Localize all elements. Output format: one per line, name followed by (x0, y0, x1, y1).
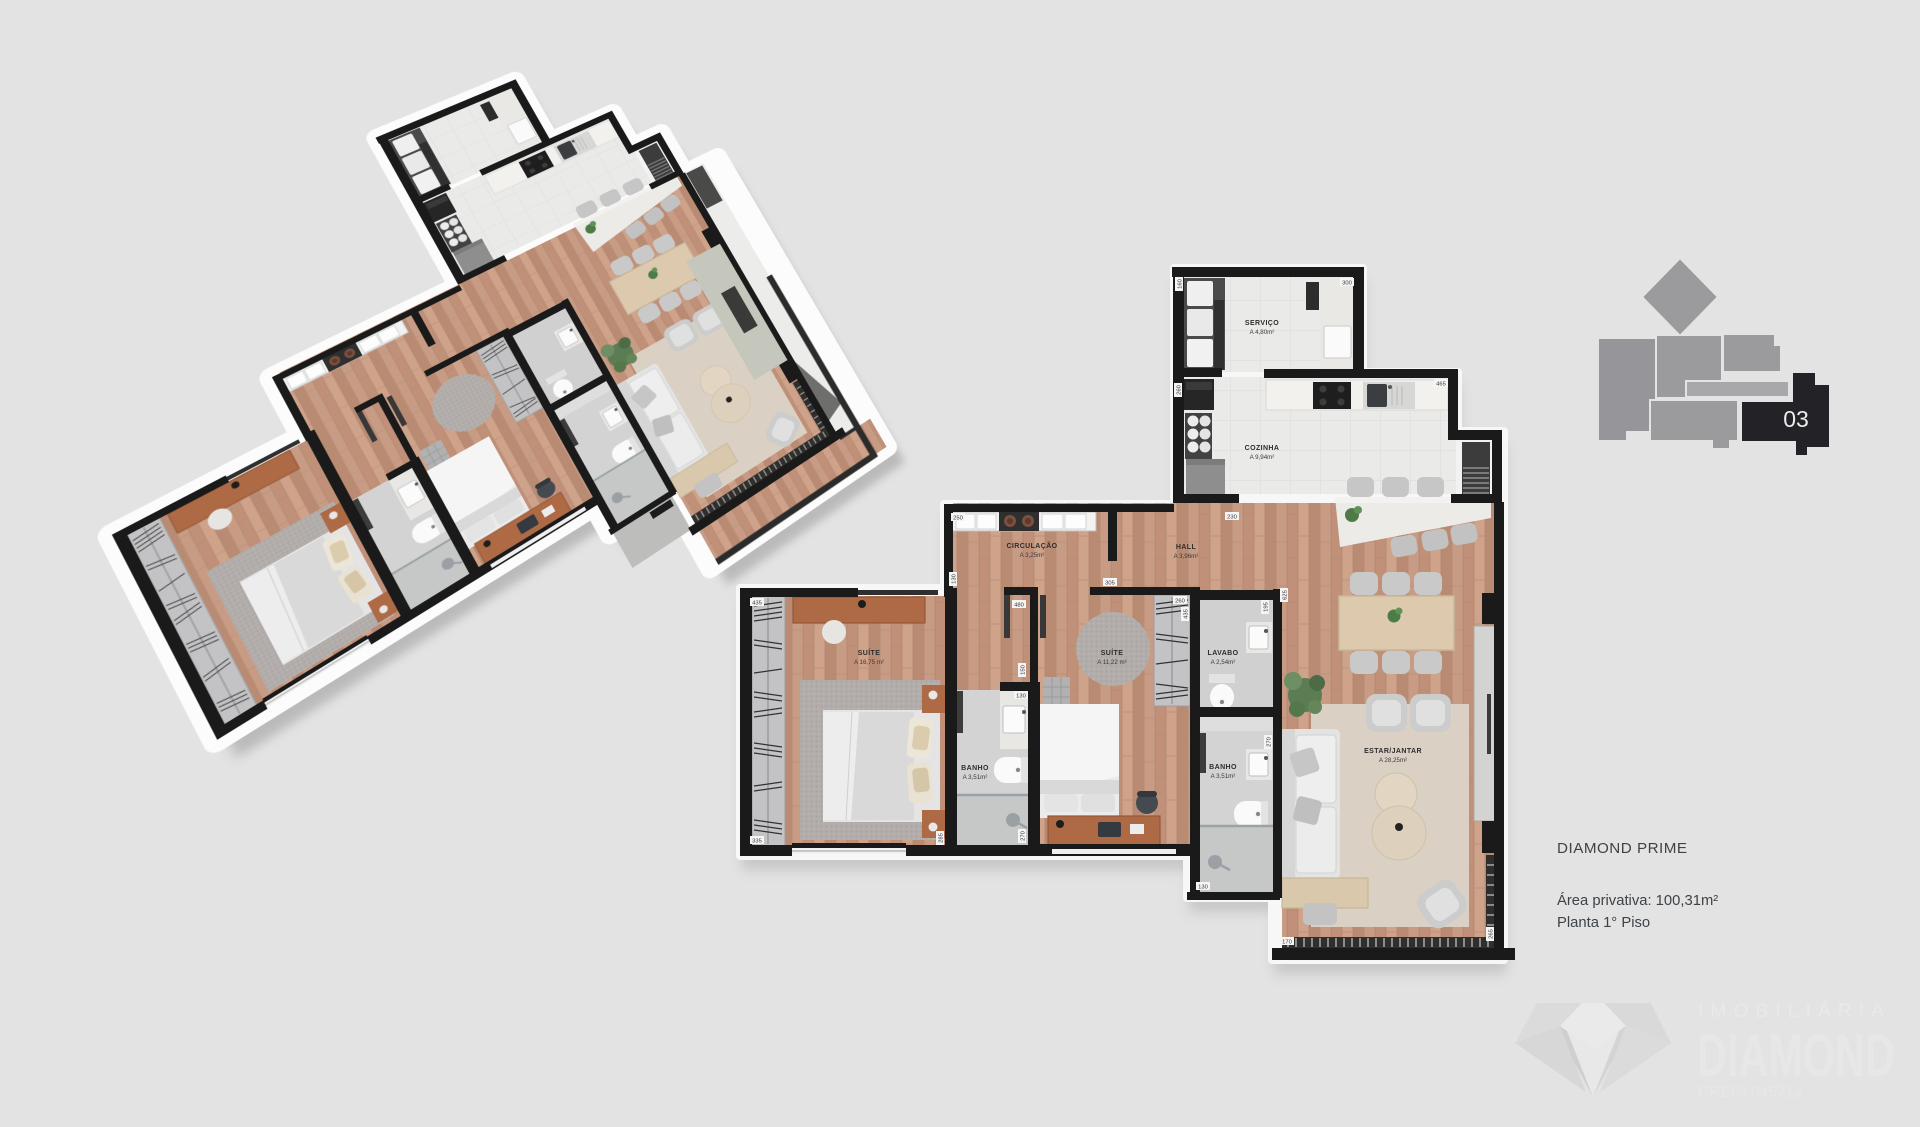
svg-text:435: 435 (752, 601, 762, 607)
svg-text:SUÍTE: SUÍTE (1101, 648, 1124, 657)
svg-text:150: 150 (1021, 665, 1027, 675)
svg-text:270: 270 (1021, 831, 1027, 841)
svg-text:270: 270 (1267, 737, 1273, 747)
svg-text:DIAMOND PRIME: DIAMOND PRIME (1557, 840, 1688, 857)
svg-text:335: 335 (752, 839, 762, 845)
svg-text:A 3,25m²: A 3,25m² (1020, 552, 1045, 559)
svg-text:480: 480 (1014, 603, 1024, 609)
svg-text:A 16,75 m²: A 16,75 m² (854, 659, 884, 666)
svg-text:250: 250 (953, 516, 963, 522)
svg-text:A 28,25m²: A 28,25m² (1379, 757, 1407, 764)
svg-text:BANHO: BANHO (961, 765, 989, 772)
svg-text:130: 130 (1198, 885, 1208, 891)
svg-text:LAVABO: LAVABO (1208, 650, 1239, 657)
svg-text:285: 285 (939, 833, 945, 843)
svg-text:Planta 1° Piso: Planta 1° Piso (1557, 915, 1650, 931)
svg-text:625: 625 (1283, 590, 1289, 600)
svg-text:COZINHA: COZINHA (1245, 445, 1280, 452)
svg-text:160: 160 (1178, 279, 1184, 289)
svg-text:230: 230 (1227, 515, 1237, 521)
svg-text:260: 260 (1175, 599, 1185, 605)
svg-text:A 4,80m²: A 4,80m² (1250, 329, 1275, 336)
svg-text:170: 170 (1282, 940, 1292, 946)
svg-text:260: 260 (1177, 385, 1183, 395)
svg-text:465: 465 (1436, 382, 1446, 388)
svg-text:195: 195 (1264, 602, 1270, 612)
svg-text:300: 300 (1342, 281, 1352, 287)
svg-text:SERVIÇO: SERVIÇO (1245, 320, 1279, 327)
svg-text:SUÍTE: SUÍTE (858, 648, 881, 657)
svg-text:A 3,96m²: A 3,96m² (1174, 553, 1199, 560)
svg-text:305: 305 (1105, 581, 1115, 587)
svg-text:A 2,54m²: A 2,54m² (1211, 659, 1236, 666)
svg-text:BANHO: BANHO (1209, 764, 1237, 771)
svg-text:435: 435 (1184, 609, 1190, 619)
svg-text:265: 265 (1489, 929, 1495, 939)
svg-text:A 3,51m²: A 3,51m² (963, 774, 988, 781)
svg-text:HALL: HALL (1176, 544, 1197, 551)
svg-text:Área privativa: 100,31m²: Área privativa: 100,31m² (1557, 892, 1718, 909)
svg-text:IMOBILIÁRIA: IMOBILIÁRIA (1698, 1001, 1891, 1022)
svg-text:130: 130 (952, 574, 958, 584)
svg-text:130: 130 (1016, 694, 1026, 700)
svg-text:A 11,22 m²: A 11,22 m² (1097, 659, 1126, 666)
svg-text:A 3,51m²: A 3,51m² (1211, 773, 1236, 780)
svg-text:DIAMOND: DIAMOND (1697, 1022, 1895, 1089)
svg-text:03: 03 (1783, 406, 1809, 432)
svg-text:CRECI 04571J: CRECI 04571J (1698, 1084, 1802, 1101)
svg-text:ESTAR/JANTAR: ESTAR/JANTAR (1364, 748, 1422, 755)
svg-text:A 9,94m²: A 9,94m² (1250, 454, 1275, 461)
svg-text:CIRCULAÇÃO: CIRCULAÇÃO (1006, 541, 1057, 550)
